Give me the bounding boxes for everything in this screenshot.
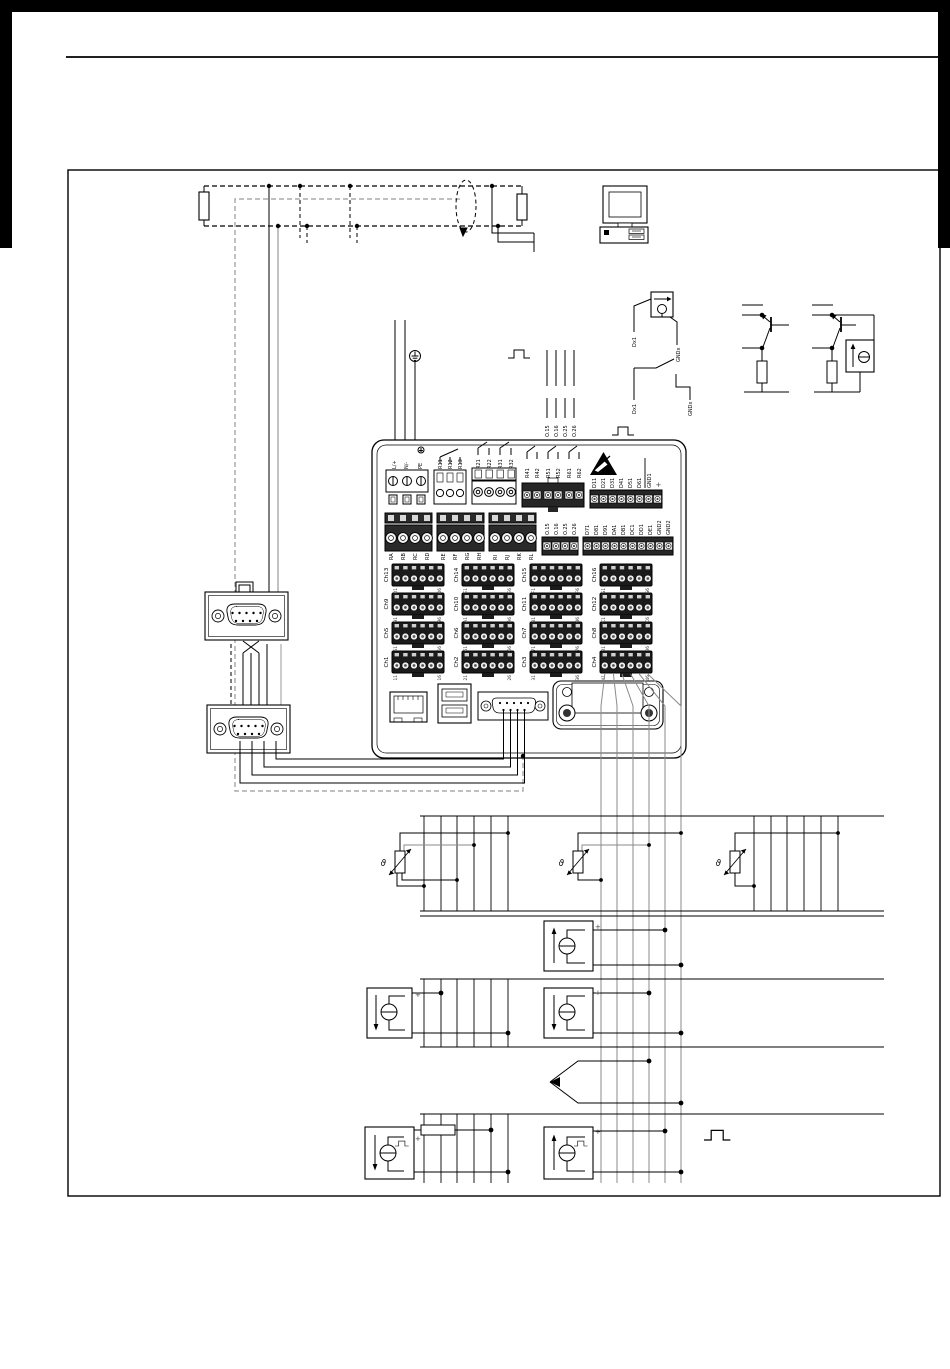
svg-text:A1: A1: [463, 617, 469, 623]
svg-text:Ch13: Ch13: [384, 567, 390, 582]
gndx-label: GNDx: [676, 348, 682, 362]
digital-label: D71: [585, 525, 591, 535]
svg-text:C6: C6: [645, 617, 651, 623]
svg-text:81: 81: [601, 646, 607, 652]
plus-sign: +: [415, 991, 421, 999]
pc-icon: [600, 186, 648, 243]
dx1-label: Dx1: [632, 404, 638, 414]
rtd-sensor-icon: [724, 849, 746, 875]
svg-text:Ch6: Ch6: [454, 627, 460, 638]
svg-text:56: 56: [437, 646, 443, 652]
svg-text:51: 51: [393, 646, 399, 652]
ext-label: RL: [529, 554, 535, 560]
digital-label: D51: [628, 478, 634, 488]
digital-label: D91: [603, 525, 609, 535]
ext-label: RA: [389, 553, 395, 560]
svg-text:21: 21: [463, 675, 469, 681]
relay-label: R11: [438, 459, 444, 469]
pulse-icon: [612, 427, 634, 435]
rtd-sensor-icon: [389, 849, 411, 875]
oc-label: O.16: [554, 523, 560, 535]
transistor-circuit-1: [742, 305, 789, 392]
relay-label: R31: [498, 459, 504, 469]
svg-text:Ch16: Ch16: [592, 567, 598, 582]
digital-label: D41: [619, 478, 625, 488]
manual-page: O.15 O.16 O.25 O.26 Dx1 GNDx Dx1 GNDx: [0, 0, 950, 1369]
svg-text:Ch9: Ch9: [384, 598, 390, 609]
digital-label: DD1: [639, 524, 645, 535]
cable-shield-ellipse: [456, 180, 476, 232]
ext-label: RK: [517, 553, 523, 560]
ext-label: RB: [401, 553, 407, 560]
pulse-source-mid: [544, 1127, 683, 1179]
relay-label: R32: [509, 459, 515, 469]
svg-text:Ch10: Ch10: [454, 596, 460, 611]
oc-line-label: O.25: [563, 425, 569, 437]
relay-label: R42: [535, 468, 541, 478]
ext-label: RG: [465, 553, 471, 560]
digital-label: GND2: [666, 520, 672, 535]
pulse-icon: [508, 350, 530, 358]
power-label: N/-: [404, 462, 410, 469]
relay-label: R13: [458, 459, 464, 469]
shield-junction-dot: [521, 754, 525, 758]
ext-label: RD: [425, 553, 431, 560]
ext-label: RI: [493, 555, 499, 560]
plus-terminal-label: +: [656, 481, 662, 489]
relay-label: R62: [577, 468, 583, 478]
svg-text:G6: G6: [645, 588, 651, 594]
svg-text:E6: E6: [507, 588, 513, 594]
svg-text:Ch3: Ch3: [522, 656, 528, 667]
digital-label: DE1: [648, 525, 654, 535]
svg-text:F1: F1: [531, 588, 537, 593]
svg-text:86: 86: [645, 646, 651, 652]
ext-label: RC: [413, 553, 419, 560]
power-label: L/+: [392, 460, 398, 469]
plus-sign: +: [415, 1135, 421, 1143]
svg-text:96: 96: [437, 617, 443, 623]
svg-text:G1: G1: [601, 588, 607, 594]
transmitter-2wire: [544, 921, 683, 971]
digital-label: D31: [610, 478, 616, 488]
serial-db9-port: [478, 692, 548, 720]
svg-text:36: 36: [575, 675, 581, 681]
rtd-sensor-icon: [567, 849, 589, 875]
oc-label: O.25: [563, 523, 569, 535]
oc-label: O.26: [572, 523, 578, 535]
transistor-circuit-2: [812, 305, 874, 392]
open-collector-lines: [547, 350, 574, 418]
ext-label: RE: [441, 553, 447, 560]
plus-sign: +: [595, 989, 601, 997]
thermocouple-icon: [550, 1059, 683, 1105]
open-collector-line-labels: O.15 O.16 O.25 O.26: [545, 425, 578, 437]
plus-sign: +: [595, 1128, 601, 1136]
scan-edge-bars: [0, 0, 950, 248]
digital-label: DA1: [612, 525, 618, 535]
digital-label: D81: [594, 525, 600, 535]
oc-line-label: O.15: [545, 425, 551, 437]
theta-symbol: ϑ: [559, 859, 565, 869]
svg-text:26: 26: [507, 675, 513, 681]
relay-label: R61: [567, 468, 573, 478]
ext-label: RF: [453, 554, 459, 560]
svg-text:16: 16: [437, 675, 443, 681]
svg-text:B6: B6: [575, 617, 581, 623]
pulse-source-left: [365, 1125, 510, 1179]
earth-ground-icon: [410, 351, 421, 362]
digital-label: DC1: [630, 524, 636, 535]
ethernet-port: [390, 692, 427, 722]
termination-resistor-right: [517, 194, 527, 220]
gndx-label: GNDx: [688, 402, 694, 416]
digital-input-block-2: [583, 537, 673, 555]
svg-text:Ch12: Ch12: [592, 597, 598, 612]
relay-label: R21: [476, 459, 482, 469]
digital-label: DB1: [621, 525, 627, 535]
rtd-3wire: ϑ: [559, 831, 683, 882]
svg-text:Ch1: Ch1: [384, 656, 390, 667]
svg-text:11: 11: [393, 675, 399, 681]
digital-label: GND2: [657, 520, 663, 535]
relay-label: R52: [556, 468, 562, 478]
rtd-4wire: ϑ: [381, 831, 510, 888]
svg-text:31: 31: [531, 675, 537, 681]
svg-text:76: 76: [575, 646, 581, 652]
pulse-icon: [704, 1130, 730, 1140]
power-label: PE: [418, 463, 424, 469]
svg-text:Ch2: Ch2: [454, 656, 460, 667]
svg-text:Ch14: Ch14: [454, 567, 460, 582]
oc-label: O.15: [545, 523, 551, 535]
current-source-left: [367, 988, 510, 1038]
ext-label: RH: [477, 553, 483, 560]
svg-text:Ch4: Ch4: [592, 656, 598, 667]
svg-text:Ch7: Ch7: [522, 627, 528, 638]
dx1-label: Dx1: [632, 337, 638, 347]
ext-label: RJ: [505, 555, 511, 560]
wiring-diagram: O.15 O.16 O.25 O.26 Dx1 GNDx Dx1 GNDx: [0, 0, 950, 1369]
digital-label: D61: [637, 478, 643, 488]
svg-text:66: 66: [507, 646, 513, 652]
usb-port: [438, 684, 471, 723]
digital-label: D21: [601, 478, 607, 488]
svg-text:Ch8: Ch8: [592, 627, 598, 638]
relay-label: R22: [487, 459, 493, 469]
relay-label: R51: [546, 468, 552, 478]
svg-text:D1: D1: [393, 588, 399, 594]
plus-sign: +: [595, 923, 601, 931]
bus-junction-dots: [267, 184, 500, 228]
oc-line-label: O.16: [554, 425, 560, 437]
oc-line-label: O.26: [572, 425, 578, 437]
relay-extension-strips: [385, 513, 536, 551]
svg-text:61: 61: [463, 646, 469, 652]
svg-text:B1: B1: [531, 617, 537, 623]
shunt-resistor: [421, 1125, 455, 1135]
svg-text:D6: D6: [437, 588, 443, 594]
db9-connector-1: [205, 592, 288, 640]
remote-display-connector: [553, 681, 663, 729]
db9-connector-2: [207, 705, 290, 753]
relay-label: R41: [525, 468, 531, 478]
digital-label: GND1: [647, 473, 653, 488]
terminal-rails-right: [754, 816, 838, 911]
svg-text:E1: E1: [463, 588, 469, 594]
open-collector-strip: [542, 537, 578, 555]
svg-text:C1: C1: [601, 617, 607, 623]
theta-symbol: ϑ: [381, 859, 387, 869]
digital-input-example-sensor: [634, 292, 677, 345]
digital-label: D11: [592, 478, 598, 488]
digital-input-example-contact: [634, 359, 690, 400]
svg-text:Ch11: Ch11: [522, 596, 528, 611]
current-source-mid: [544, 988, 683, 1038]
svg-text:A6: A6: [507, 617, 513, 623]
power-terminal-block: [386, 470, 428, 504]
svg-text:71: 71: [531, 646, 537, 652]
relay-label: R12: [448, 459, 454, 469]
svg-text:F6: F6: [575, 588, 581, 593]
termination-resistor-left: [199, 192, 209, 220]
svg-text:91: 91: [393, 617, 399, 623]
theta-symbol: ϑ: [716, 859, 722, 869]
svg-text:Ch15: Ch15: [522, 567, 528, 582]
svg-text:Ch5: Ch5: [384, 627, 390, 638]
